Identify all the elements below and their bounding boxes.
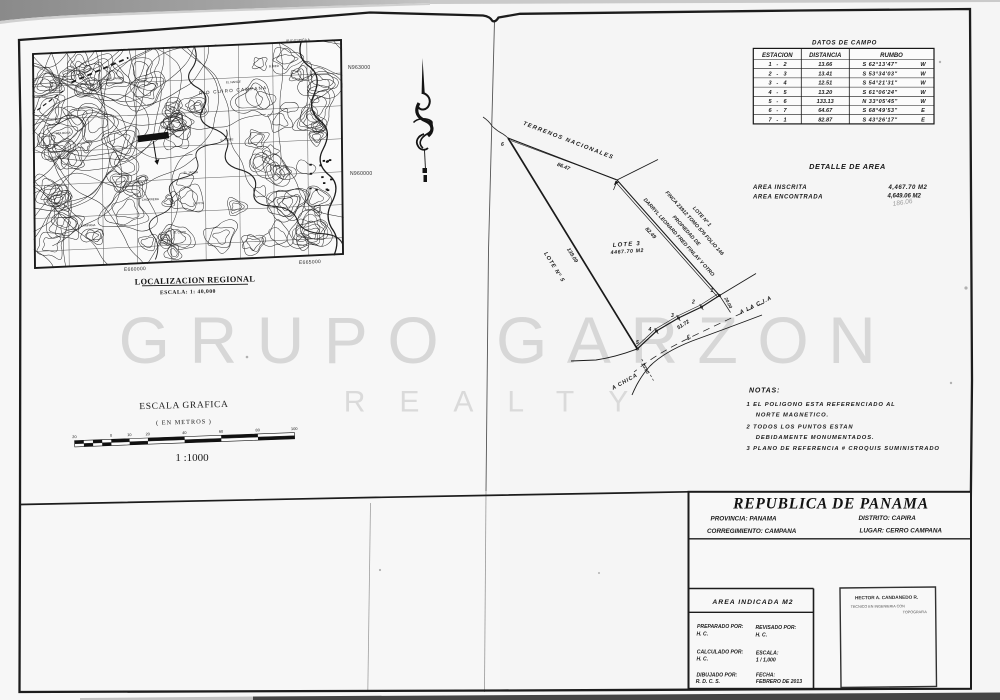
svg-text:H. C.: H. C. [697, 657, 709, 663]
svg-text:W: W [920, 90, 926, 96]
svg-text:E665000: E665000 [299, 259, 321, 266]
svg-text:1: 1 [711, 288, 714, 294]
svg-text:W: W [920, 62, 926, 68]
svg-text:5: 5 [636, 340, 639, 346]
svg-text:S 68°49'53": S 68°49'53" [862, 108, 897, 114]
svg-text:STA ROSA: STA ROSA [56, 131, 71, 136]
svg-text:N963000: N963000 [348, 65, 370, 71]
svg-text:1 EL POLIGONO ESTA REFEREN: 1 EL POLIGONO ESTA REFERENCIADO AL [747, 402, 896, 408]
svg-text:PROVINCIA: PANAMA: PROVINCIA: PANAMA [711, 516, 777, 523]
svg-text:NORTE MAGNETICO.: NORTE MAGNETICO. [756, 413, 829, 419]
svg-text:S 43°26'17": S 43°26'17" [862, 117, 897, 123]
svg-text:W: W [920, 99, 926, 105]
svg-text:REPUBLICA DE PANAMA: REPUBLICA DE PANAMA [732, 496, 929, 513]
svg-text:82.87: 82.87 [818, 117, 833, 123]
svg-text:CORREGIMIENTO: CAMPANA: CORREGIMIENTO: CAMPANA [707, 528, 797, 535]
svg-text:4,467.70 M2: 4,467.70 M2 [888, 185, 928, 191]
svg-text:2 TODOS LOS PUNTOS ESTAN: 2 TODOS LOS PUNTOS ESTAN [746, 425, 854, 431]
svg-text:AREA ENCONTRADA: AREA ENCONTRADA [752, 194, 823, 200]
svg-text:2: 2 [691, 300, 695, 306]
svg-text:B. RED: B. RED [269, 64, 280, 68]
svg-text:-: - [776, 62, 778, 68]
svg-text:100: 100 [291, 426, 299, 431]
svg-text:W: W [920, 81, 926, 87]
svg-text:AREA INDICADA M2: AREA INDICADA M2 [711, 599, 793, 606]
svg-text:GRUPO GARZON: GRUPO GARZON [119, 303, 896, 377]
svg-text:R. D. C. S.: R. D. C. S. [696, 679, 720, 685]
svg-text:S 62°13'47": S 62°13'47" [862, 62, 897, 68]
svg-text:1: 1 [768, 62, 771, 68]
svg-text:1: 1 [783, 117, 786, 123]
svg-text:13.20: 13.20 [818, 90, 833, 96]
svg-text:DIBUJADO POR:: DIBUJADO POR: [697, 673, 738, 679]
svg-text:-: - [776, 90, 778, 96]
svg-text:LOS LLANOS: LOS LLANOS [104, 76, 123, 81]
svg-text:1 / 1,000: 1 / 1,000 [756, 658, 776, 664]
svg-text:N 33°05'45": N 33°05'45" [862, 99, 897, 105]
svg-text:13.41: 13.41 [818, 71, 832, 77]
svg-text:ESTACION: ESTACION [762, 53, 793, 59]
svg-text:S 61°06'24": S 61°06'24" [862, 90, 897, 96]
svg-text:S 54°21'31": S 54°21'31" [862, 81, 897, 87]
svg-text:H. C.: H. C. [697, 632, 709, 638]
svg-text:N960000: N960000 [350, 171, 372, 177]
svg-text:LA MESA: LA MESA [48, 155, 61, 160]
svg-text:RUMBO: RUMBO [880, 53, 903, 59]
svg-text:E660000: E660000 [124, 266, 146, 273]
svg-text:-: - [776, 108, 778, 114]
svg-text:H. C.: H. C. [756, 632, 768, 638]
svg-text:DATOS DE CAMPO: DATOS DE CAMPO [812, 40, 877, 47]
svg-text:1 :1000: 1 :1000 [175, 452, 209, 464]
svg-text:REVISADO POR:: REVISADO POR: [756, 625, 797, 631]
svg-text:-: - [776, 117, 778, 123]
svg-text:EL COPE: EL COPE [173, 230, 186, 235]
svg-text:ESCALA:: ESCALA: [756, 650, 779, 656]
svg-text:DEBIDAMENTE MONUMENTADOS.: DEBIDAMENTE MONUMENTADOS. [756, 435, 875, 441]
svg-text:CAMPANA: CAMPANA [81, 223, 96, 228]
svg-text:4: 4 [648, 327, 652, 333]
svg-text:-: - [776, 99, 778, 105]
svg-text:-: - [776, 81, 778, 87]
svg-text:12.51: 12.51 [818, 81, 832, 87]
svg-text:64.67: 64.67 [818, 108, 833, 114]
svg-text:EL NANCE: EL NANCE [226, 80, 241, 85]
svg-text:3 PLANO DE REFERENCIA # C: 3 PLANO DE REFERENCIA # CROQUIS SUMINIST… [747, 446, 940, 452]
svg-text:-: - [776, 71, 778, 77]
svg-text:CALCULADO POR:: CALCULADO POR: [697, 650, 744, 656]
svg-text:HECTOR A. CANDANEDO R.: HECTOR A. CANDANEDO R. [855, 595, 918, 601]
svg-text:( EN METROS ): ( EN METROS ) [156, 418, 212, 426]
svg-text:LA PITA: LA PITA [193, 201, 204, 205]
svg-text:C. TIGRE: C. TIGRE [220, 137, 233, 142]
svg-text:3: 3 [671, 313, 674, 319]
svg-text:DISTRITO: CAPIRA: DISTRITO: CAPIRA [859, 515, 917, 522]
svg-text:DISTANCIA: DISTANCIA [809, 53, 841, 59]
svg-text:NOTAS:: NOTAS: [749, 388, 780, 395]
svg-text:FEBRERO DE 2013: FEBRERO DE 2013 [756, 679, 802, 685]
svg-text:S 53°34'03": S 53°34'03" [862, 71, 897, 77]
svg-text:E: E [921, 117, 925, 123]
svg-text:EL JAGUA: EL JAGUA [184, 170, 198, 175]
svg-text:PREPARADO POR:: PREPARADO POR: [697, 624, 744, 630]
svg-text:AREA INSCRITA: AREA INSCRITA [752, 185, 807, 191]
svg-text:13.66: 13.66 [818, 62, 833, 68]
svg-text:CHORRERA: CHORRERA [142, 197, 159, 202]
svg-text:W: W [920, 71, 926, 77]
svg-text:E: E [921, 108, 925, 114]
svg-text:6: 6 [501, 142, 504, 148]
svg-text:EL VALLE: EL VALLE [161, 125, 175, 130]
svg-text:DETALLE DE AREA: DETALLE DE AREA [809, 162, 886, 171]
svg-text:LUGAR: CERRO CAMPANA: LUGAR: CERRO CAMPANA [860, 527, 943, 534]
svg-text:TOPOGRAFIA: TOPOGRAFIA [903, 610, 928, 614]
svg-text:FECHA:: FECHA: [756, 673, 776, 679]
svg-text:TECNICO EN INGENIERIA CON: TECNICO EN INGENIERIA CON [851, 604, 905, 609]
svg-text:133.13: 133.13 [817, 99, 835, 105]
